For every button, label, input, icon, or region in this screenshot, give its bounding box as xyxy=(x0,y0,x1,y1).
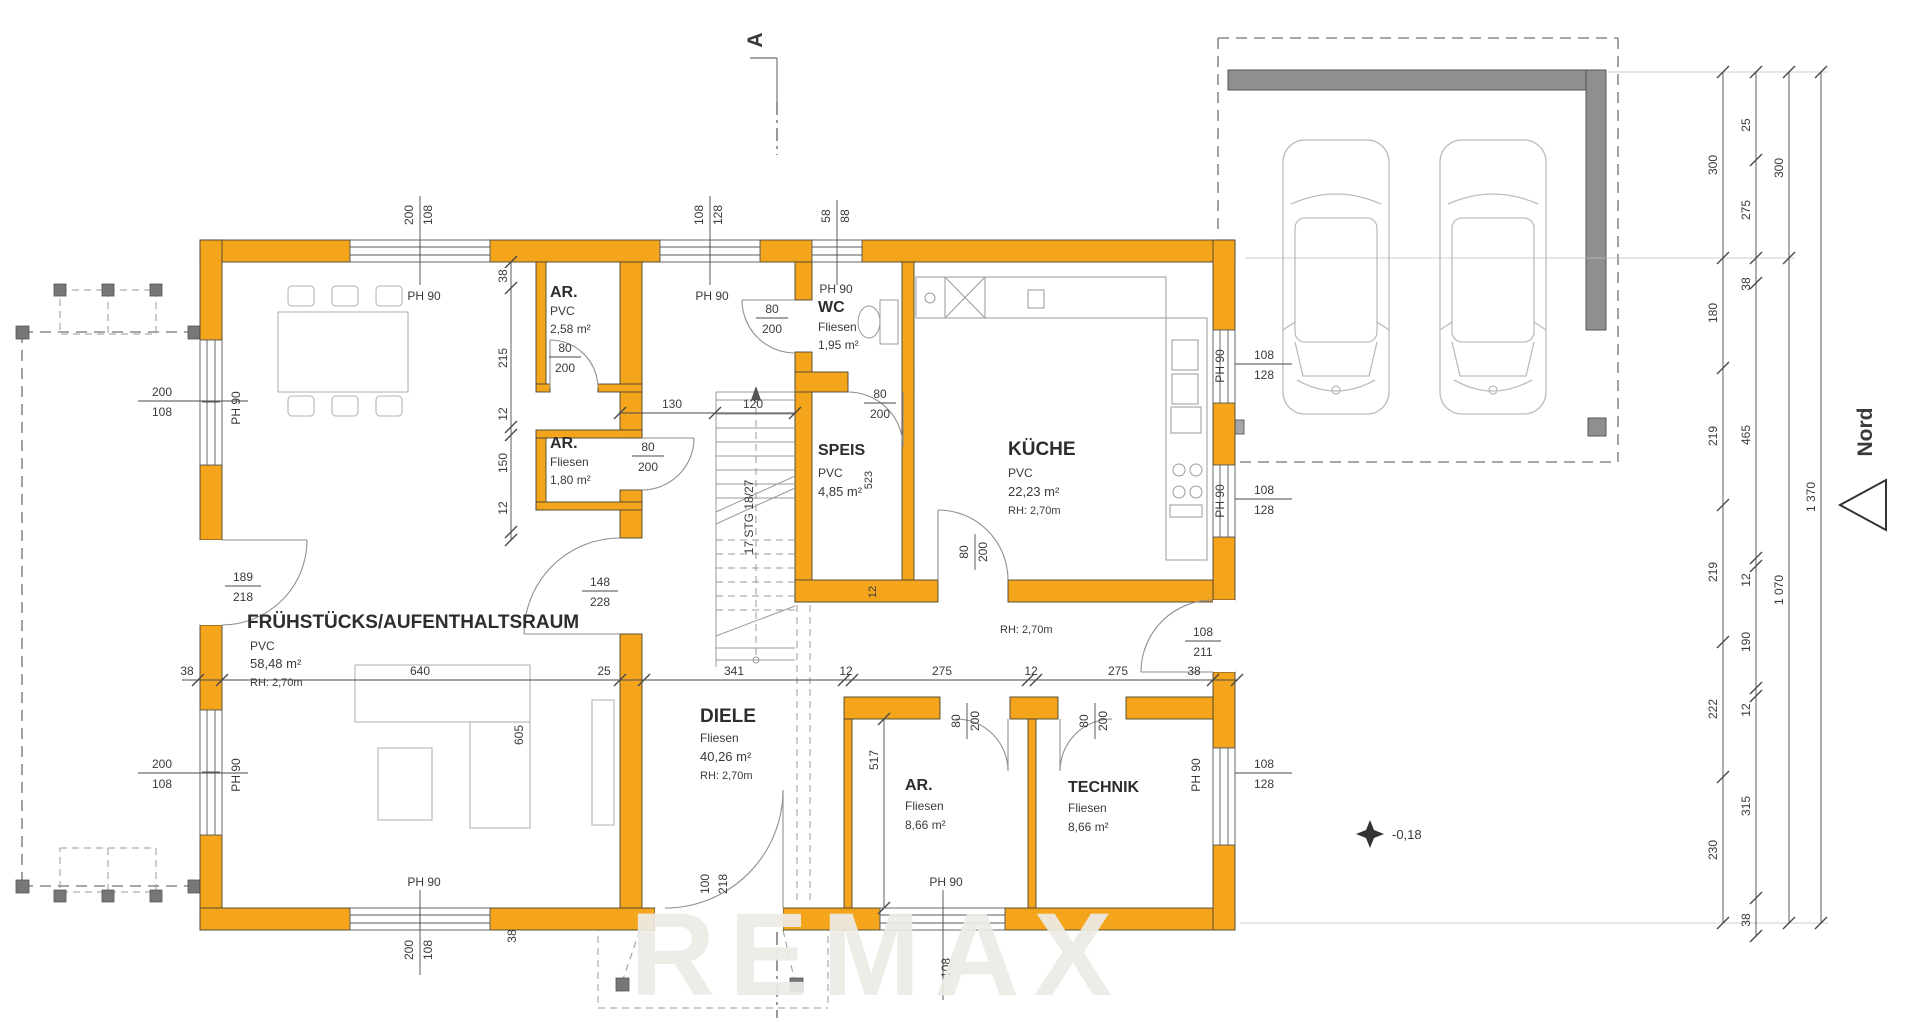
dim-top-w2-a: 108 xyxy=(692,205,706,225)
dim-li-0: 38 xyxy=(496,269,510,283)
dim-left-w1-a: 200 xyxy=(152,385,172,399)
dim-li-3: 150 xyxy=(496,453,510,473)
room-floor-speis: PVC xyxy=(818,466,843,480)
room-floor-ar-south: Fliesen xyxy=(905,799,944,813)
garage-access-door xyxy=(1141,600,1235,672)
north-arrow: Nord xyxy=(1840,408,1886,531)
ph-label: PH 90 xyxy=(1189,758,1203,792)
dim-door80: 80 xyxy=(957,545,971,559)
dim-right-w3-a: 108 xyxy=(1254,757,1274,771)
corridor-rh-label: RH: 2,70m xyxy=(1000,624,1053,636)
room-label-speis: SPEIS xyxy=(818,442,865,459)
dim-bottom-38: 38 xyxy=(505,929,519,943)
room-rh-kueche: RH: 2,70m xyxy=(1008,505,1061,517)
room-area-breakfast: 58,48 m² xyxy=(250,656,302,671)
room-area-ar-top: 2,58 m² xyxy=(550,322,591,336)
dim-r1-5: 230 xyxy=(1706,840,1720,860)
room-area-ar-mid: 1,80 m² xyxy=(550,473,591,487)
ar-south-door xyxy=(956,719,1008,771)
dim-door80: 200 xyxy=(870,407,890,421)
room-area-kueche: 22,23 m² xyxy=(1008,484,1060,499)
room-area-speis: 4,85 m² xyxy=(818,484,863,499)
carport xyxy=(1218,38,1618,462)
room-label-breakfast: FRÜHSTÜCKS/AUFENTHALTSRAUM xyxy=(247,612,579,633)
stair-note: 17 STG 18/27 xyxy=(742,479,756,554)
ph-label: PH 90 xyxy=(929,875,963,889)
watermark: REMAX xyxy=(630,889,1126,1021)
dim-door80: 200 xyxy=(762,322,782,336)
dim-door80: 200 xyxy=(1096,711,1110,731)
dim-door80: 80 xyxy=(558,341,572,355)
car-1-icon xyxy=(1283,140,1389,414)
dim-mid-1: 640 xyxy=(410,664,430,678)
dim-right-w2-b: 128 xyxy=(1254,503,1274,517)
dim-left-door-a: 189 xyxy=(233,570,253,584)
dim-523: 523 xyxy=(863,471,875,489)
dim-517: 517 xyxy=(867,750,881,770)
window-left-1 xyxy=(200,340,222,465)
room-floor-breakfast: PVC xyxy=(250,639,275,653)
dim-r1-1: 180 xyxy=(1706,303,1720,323)
dim-right-w1-b: 128 xyxy=(1254,368,1274,382)
room-label-ar-south: AR. xyxy=(905,777,933,794)
floorplan-canvas: 17 STG 18/27 A FRÜHSTÜCKS/AUFENTHALTSRA xyxy=(0,0,1920,1022)
dim-r1-0: 300 xyxy=(1706,155,1720,175)
dim-right-w3-b: 128 xyxy=(1254,777,1274,791)
window-left-2 xyxy=(200,710,222,835)
dim-r2-3: 465 xyxy=(1739,425,1753,445)
level-marker: -0,18 xyxy=(1356,820,1422,848)
dim-r1-3: 219 xyxy=(1706,562,1720,582)
dim-right-w1-a: 108 xyxy=(1254,348,1274,362)
dim-door80: 80 xyxy=(765,302,779,316)
room-floor-ar-top: PVC xyxy=(550,304,575,318)
ph-label: PH 90 xyxy=(229,391,243,425)
room-area-wc: 1,95 m² xyxy=(818,338,859,352)
dim-right-w2-a: 108 xyxy=(1254,483,1274,497)
dim-chain-right-4: 1 370 xyxy=(1804,66,1827,929)
room-label-diele: DIELE xyxy=(700,706,756,727)
dim-top-w3-b: 88 xyxy=(838,209,852,223)
dim-mid-8: 38 xyxy=(1187,664,1201,678)
dim-door80: 80 xyxy=(873,387,887,401)
ph-label: PH 90 xyxy=(229,758,243,792)
dim-chain-right-2: 25 275 38 465 12 190 12 315 38 xyxy=(1739,66,1762,942)
dim-r2-8: 38 xyxy=(1739,913,1753,927)
window-right-3 xyxy=(1213,748,1235,845)
room-rh-diele: RH: 2,70m xyxy=(700,770,753,782)
carport-wall-right xyxy=(1586,70,1606,330)
level-star-icon xyxy=(1356,820,1384,848)
kitchen-counter xyxy=(916,277,1207,560)
ph-label: PH 90 xyxy=(819,282,853,296)
dim-r2-5: 190 xyxy=(1739,632,1753,652)
tv-board xyxy=(592,700,614,825)
dim-stair-0: 130 xyxy=(662,397,682,411)
dim-garage-door-b: 211 xyxy=(1193,645,1212,659)
dim-door80: 200 xyxy=(638,460,658,474)
dim-left-w2-a: 200 xyxy=(152,757,172,771)
wc-toilet xyxy=(858,300,898,344)
dim-li-4: 12 xyxy=(496,501,510,515)
dim-bottom-w1-a: 200 xyxy=(402,940,416,960)
north-triangle-icon xyxy=(1840,480,1886,530)
dim-left-door-b: 218 xyxy=(233,590,253,604)
dim-r2-2: 38 xyxy=(1739,277,1753,291)
dim-r3-1: 1 070 xyxy=(1772,575,1786,605)
room-area-ar-south: 8,66 m² xyxy=(905,818,946,832)
dim-r4-0: 1 370 xyxy=(1804,482,1818,512)
sofa xyxy=(355,665,530,828)
room-label-ar-mid: AR. xyxy=(550,435,578,452)
dining-table xyxy=(278,286,408,416)
dim-door80: 200 xyxy=(968,711,982,731)
dim-r1-2: 219 xyxy=(1706,426,1720,446)
room-area-diele: 40,26 m² xyxy=(700,749,752,764)
dim-mid-5: 275 xyxy=(932,664,952,678)
dim-r2-1: 275 xyxy=(1739,200,1753,220)
ph-label: PH 90 xyxy=(1213,349,1227,383)
dim-r2-4: 12 xyxy=(1739,573,1753,587)
dim-door80: 200 xyxy=(976,542,990,562)
dim-garage-door-a: 108 xyxy=(1193,625,1213,639)
room-floor-wc: Fliesen xyxy=(818,320,857,334)
dim-left-w2-b: 108 xyxy=(152,777,172,791)
room-rh-breakfast: RH: 2,70m xyxy=(250,677,303,689)
dim-pass-b: 228 xyxy=(590,595,610,609)
ph-label: PH 90 xyxy=(695,289,729,303)
dim-chain-right-3: 300 1 070 xyxy=(1772,66,1795,929)
dim-r2-7: 315 xyxy=(1739,796,1753,816)
dim-li-1: 215 xyxy=(496,348,510,368)
dim-top-w2-b: 128 xyxy=(711,205,725,225)
section-label: A xyxy=(744,32,767,47)
dim-mid-0: 38 xyxy=(180,664,194,678)
room-label-kueche: KÜCHE xyxy=(1008,439,1076,460)
dim-li-2: 12 xyxy=(496,407,510,421)
carport-post xyxy=(1588,418,1606,436)
room-area-technik: 8,66 m² xyxy=(1068,820,1109,834)
level-value: -0,18 xyxy=(1392,827,1422,842)
dim-pass-a: 148 xyxy=(590,575,610,589)
dim-605: 605 xyxy=(512,725,526,745)
dim-r2-6: 12 xyxy=(1739,703,1753,717)
dim-left-w1-b: 108 xyxy=(152,405,172,419)
dim-top-w1-a: 200 xyxy=(402,205,416,225)
ph-label: PH 90 xyxy=(407,875,441,889)
terrace-left xyxy=(16,284,201,902)
dim-door80: 80 xyxy=(949,714,963,728)
dim-mid-6: 12 xyxy=(1024,664,1038,678)
dim-r1-4: 222 xyxy=(1706,699,1720,719)
dim-12: 12 xyxy=(867,586,879,598)
ph-label: PH 90 xyxy=(407,289,441,303)
dim-chain-right-1: 300 180 219 219 222 230 xyxy=(1706,66,1729,929)
dim-mid-3: 341 xyxy=(724,664,744,678)
dim-mid-4: 12 xyxy=(839,664,853,678)
kitchen-door xyxy=(938,510,1008,580)
dim-r2-0: 25 xyxy=(1739,118,1753,132)
room-label-technik: TECHNIK xyxy=(1068,779,1140,796)
dimension-chains: 38 640 25 341 12 275 12 275 38 130 120 3… xyxy=(180,66,1828,942)
dim-stair-1: 120 xyxy=(743,397,763,411)
dim-door80: 80 xyxy=(1077,714,1091,728)
room-floor-ar-mid: Fliesen xyxy=(550,455,589,469)
floorplan-svg: 17 STG 18/27 A FRÜHSTÜCKS/AUFENTHALTSRA xyxy=(0,0,1920,1022)
dim-mid-7: 275 xyxy=(1108,664,1128,678)
room-floor-kueche: PVC xyxy=(1008,466,1033,480)
dim-mid-2: 25 xyxy=(597,664,611,678)
room-floor-technik: Fliesen xyxy=(1068,801,1107,815)
car-2-icon xyxy=(1440,140,1546,414)
dim-bottom-w1-b: 108 xyxy=(421,940,435,960)
dim-door80: 80 xyxy=(641,440,655,454)
dim-top-w1-b: 108 xyxy=(421,205,435,225)
room-label-wc: WC xyxy=(818,299,845,316)
dim-top-w3-a: 58 xyxy=(819,209,833,223)
dim-r3-0: 300 xyxy=(1772,158,1786,178)
carport-wall-top xyxy=(1228,70,1606,90)
room-floor-diele: Fliesen xyxy=(700,731,739,745)
ph-label: PH 90 xyxy=(1213,484,1227,518)
room-label-ar-top: AR. xyxy=(550,284,578,301)
dim-door80: 200 xyxy=(555,361,575,375)
north-label: Nord xyxy=(1854,408,1877,457)
